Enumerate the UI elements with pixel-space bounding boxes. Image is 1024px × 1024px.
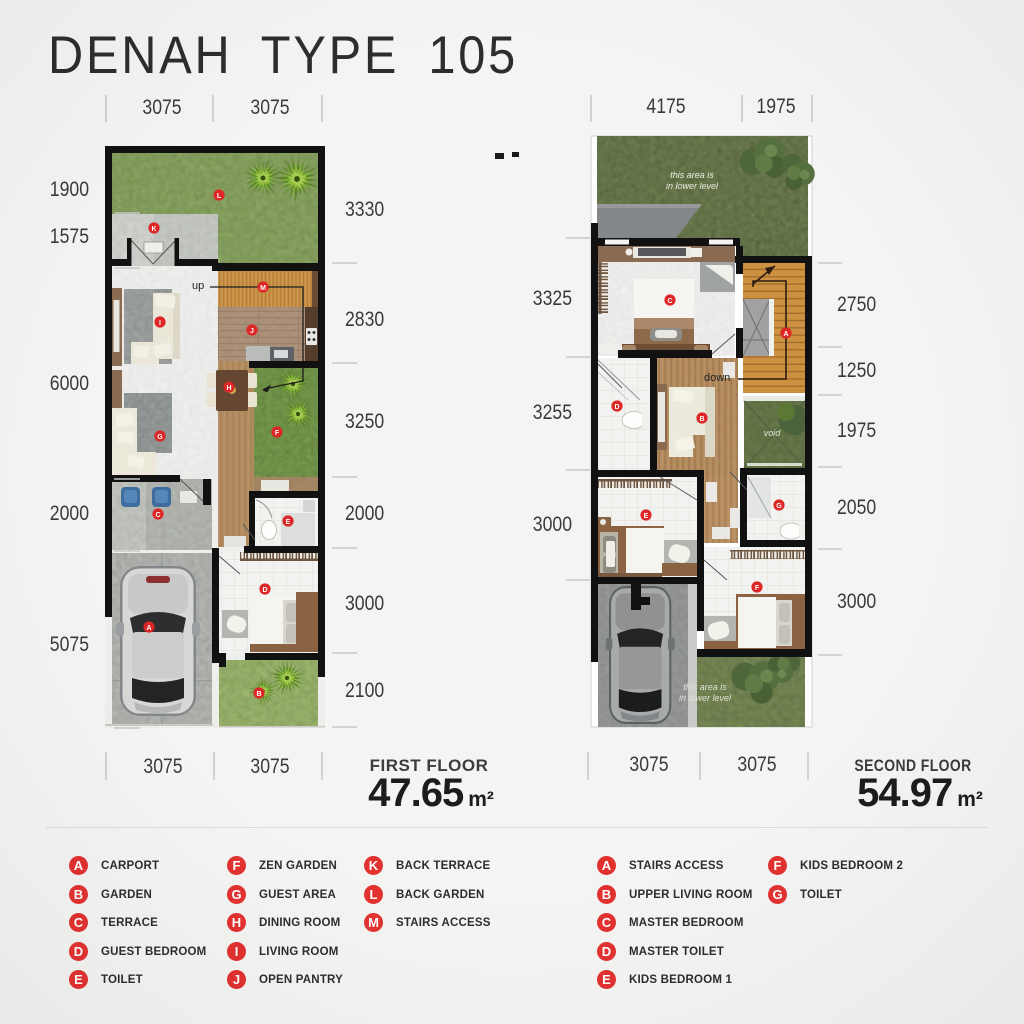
svg-text:J: J: [250, 328, 254, 335]
svg-text:A: A: [146, 625, 151, 632]
svg-text:M: M: [260, 285, 266, 292]
svg-text:B: B: [256, 691, 261, 698]
svg-text:F: F: [755, 585, 760, 592]
svg-text:D: D: [614, 404, 619, 411]
svg-text:L: L: [217, 193, 222, 200]
svg-text:F: F: [275, 430, 280, 437]
svg-text:A: A: [783, 331, 788, 338]
svg-text:H: H: [226, 385, 231, 392]
svg-text:E: E: [286, 519, 291, 526]
svg-text:D: D: [262, 587, 267, 594]
svg-text:K: K: [151, 226, 156, 233]
svg-text:B: B: [699, 416, 704, 423]
svg-text:C: C: [667, 298, 672, 305]
svg-text:E: E: [644, 513, 649, 520]
svg-text:G: G: [157, 434, 163, 441]
svg-text:I: I: [159, 320, 161, 327]
svg-text:G: G: [776, 503, 782, 510]
svg-text:C: C: [155, 512, 160, 519]
